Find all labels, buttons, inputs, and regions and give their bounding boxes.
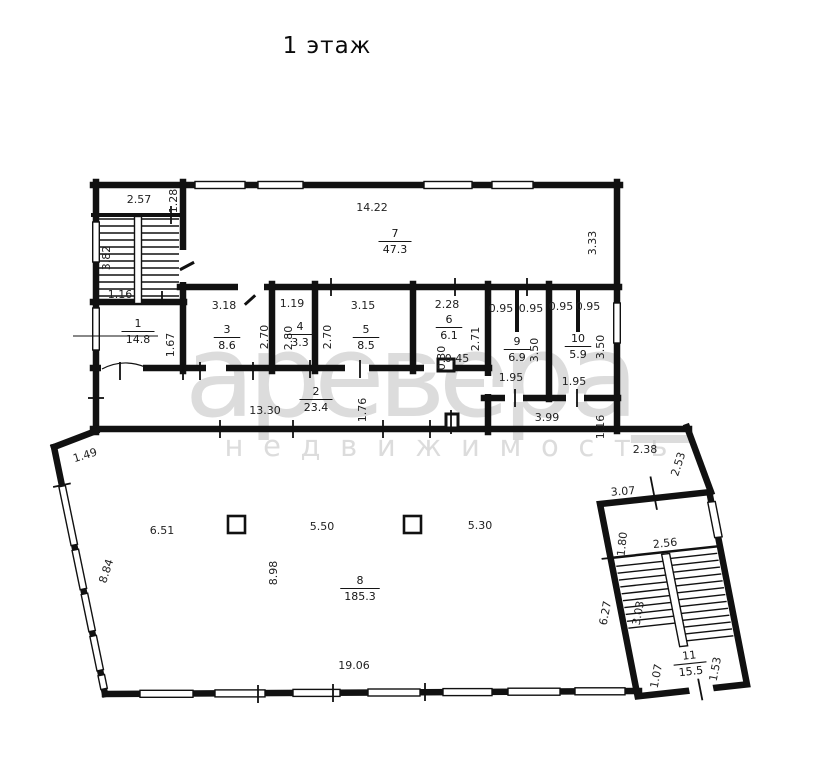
window bbox=[508, 688, 560, 695]
window bbox=[492, 182, 533, 189]
niche-corridor bbox=[446, 414, 458, 428]
dimension-label: 8.84 bbox=[96, 557, 116, 584]
dimension-label: 14.22 bbox=[356, 201, 388, 214]
dimension-label: 2.38 bbox=[633, 443, 658, 456]
dimension-label: 0.95 bbox=[549, 300, 574, 313]
room-number: 8 bbox=[357, 574, 364, 587]
stair-stringer bbox=[135, 217, 142, 304]
room-label: 1115.5 bbox=[672, 647, 708, 679]
room-label: 8185.3 bbox=[340, 574, 380, 603]
dimension-label: 2.70 bbox=[321, 325, 334, 350]
room-label: 747.3 bbox=[379, 227, 412, 256]
wall-west-slant-top bbox=[54, 431, 96, 447]
dimension-label: 1.19 bbox=[280, 297, 305, 310]
window bbox=[93, 222, 100, 262]
dimension-label: 0.45 bbox=[445, 352, 470, 365]
wall-ne-diagonal bbox=[687, 427, 711, 492]
dimension-label: 3.99 bbox=[535, 411, 560, 424]
window bbox=[140, 690, 193, 697]
dimension-label: 8.98 bbox=[267, 561, 280, 586]
window bbox=[72, 549, 87, 590]
window bbox=[98, 674, 107, 689]
dimension-label: 1.95 bbox=[499, 371, 524, 384]
dimension-label: 1.80 bbox=[615, 531, 630, 557]
room-number: 4 bbox=[297, 320, 304, 333]
floor-plan-canvas: аревера_ н е д в и ж и м о с т ь 1 этаж bbox=[0, 0, 819, 768]
room-number: 5 bbox=[363, 323, 370, 336]
dimension-label: 3.82 bbox=[100, 246, 113, 271]
dimension-label: 6.51 bbox=[150, 524, 175, 537]
room-number: 7 bbox=[392, 227, 399, 240]
dimension-label: 1.53 bbox=[707, 656, 724, 683]
dimension-label: 1.49 bbox=[71, 446, 98, 466]
room-area: 15.5 bbox=[678, 664, 704, 679]
room-number: 1 bbox=[135, 317, 142, 330]
room-area: 23.4 bbox=[304, 401, 329, 414]
dimension-label: 19.06 bbox=[338, 659, 370, 672]
dimension-label: 2.70 bbox=[258, 325, 271, 350]
room-area: 3.3 bbox=[291, 336, 309, 349]
window bbox=[424, 182, 472, 189]
dimension-label: 3.33 bbox=[586, 231, 599, 256]
dimension-label: 0.95 bbox=[519, 302, 544, 315]
dimension-label: 1.16 bbox=[594, 415, 607, 440]
window bbox=[368, 689, 420, 696]
pillar bbox=[228, 516, 245, 533]
dimension-label: 1.76 bbox=[356, 398, 369, 423]
stairs-lower-right bbox=[587, 470, 753, 708]
dimension-label: 1.16 bbox=[108, 288, 133, 301]
dimension-label: 2.53 bbox=[668, 450, 688, 477]
page-title: 1 этаж bbox=[283, 33, 372, 59]
dimension-label: 3.15 bbox=[351, 299, 376, 312]
floor-plan-page: аревера_ н е д в и ж и м о с т ь 1 этаж bbox=[0, 0, 819, 768]
dimension-label: 6.27 bbox=[597, 600, 614, 627]
window bbox=[195, 182, 245, 189]
room-area: 185.3 bbox=[344, 590, 376, 603]
room-number: 2 bbox=[313, 385, 320, 398]
dimension-label: 2.71 bbox=[469, 327, 482, 352]
dimension-label: 2.56 bbox=[652, 536, 678, 551]
window bbox=[258, 182, 303, 189]
stair-stringer bbox=[662, 554, 688, 647]
dimension-label: 13.30 bbox=[249, 404, 281, 417]
room-number: 9 bbox=[514, 335, 521, 348]
room-number: 10 bbox=[571, 332, 585, 345]
dimension-label: 5.50 bbox=[310, 520, 335, 533]
dimension-label: 1.07 bbox=[648, 663, 665, 690]
door-leaf bbox=[244, 294, 256, 306]
dimension-label: 3.18 bbox=[212, 299, 237, 312]
dimension-label: 1.95 bbox=[562, 375, 587, 388]
room-area: 5.9 bbox=[569, 348, 587, 361]
room-number: 11 bbox=[682, 648, 697, 662]
dimension-tick bbox=[602, 557, 620, 559]
window bbox=[59, 485, 78, 545]
dimension-label: 0.30 bbox=[435, 346, 448, 371]
window bbox=[443, 689, 492, 696]
dimension-tick bbox=[650, 476, 657, 509]
room-label: 114.8 bbox=[122, 317, 155, 346]
window bbox=[614, 303, 621, 343]
room-area: 8.6 bbox=[218, 339, 236, 352]
dimension-label: 3.03 bbox=[630, 600, 647, 627]
dimension-label: 1.67 bbox=[164, 333, 177, 358]
pillar bbox=[404, 516, 421, 533]
dimension-label: 0.95 bbox=[489, 302, 514, 315]
room-area: 6.1 bbox=[440, 329, 458, 342]
room-area: 47.3 bbox=[383, 243, 408, 256]
window bbox=[93, 308, 100, 350]
dimension-label: 2.57 bbox=[127, 193, 152, 206]
room-number: 3 bbox=[224, 323, 231, 336]
window bbox=[708, 501, 722, 537]
room-area: 8.5 bbox=[357, 339, 375, 352]
dimension-label: 5.30 bbox=[468, 519, 493, 532]
dimension-label: 0.95 bbox=[576, 300, 601, 313]
window bbox=[90, 635, 104, 671]
room-number: 6 bbox=[446, 313, 453, 326]
room-area: 6.9 bbox=[508, 351, 526, 364]
dimension-label: 2.28 bbox=[435, 298, 460, 311]
dimension-label: 3.07 bbox=[610, 484, 635, 499]
window bbox=[575, 688, 625, 695]
room-area: 14.8 bbox=[126, 333, 151, 346]
window bbox=[81, 593, 95, 632]
dimension-label: 1.28 bbox=[167, 189, 180, 214]
dimension-label: 3.50 bbox=[594, 335, 607, 360]
